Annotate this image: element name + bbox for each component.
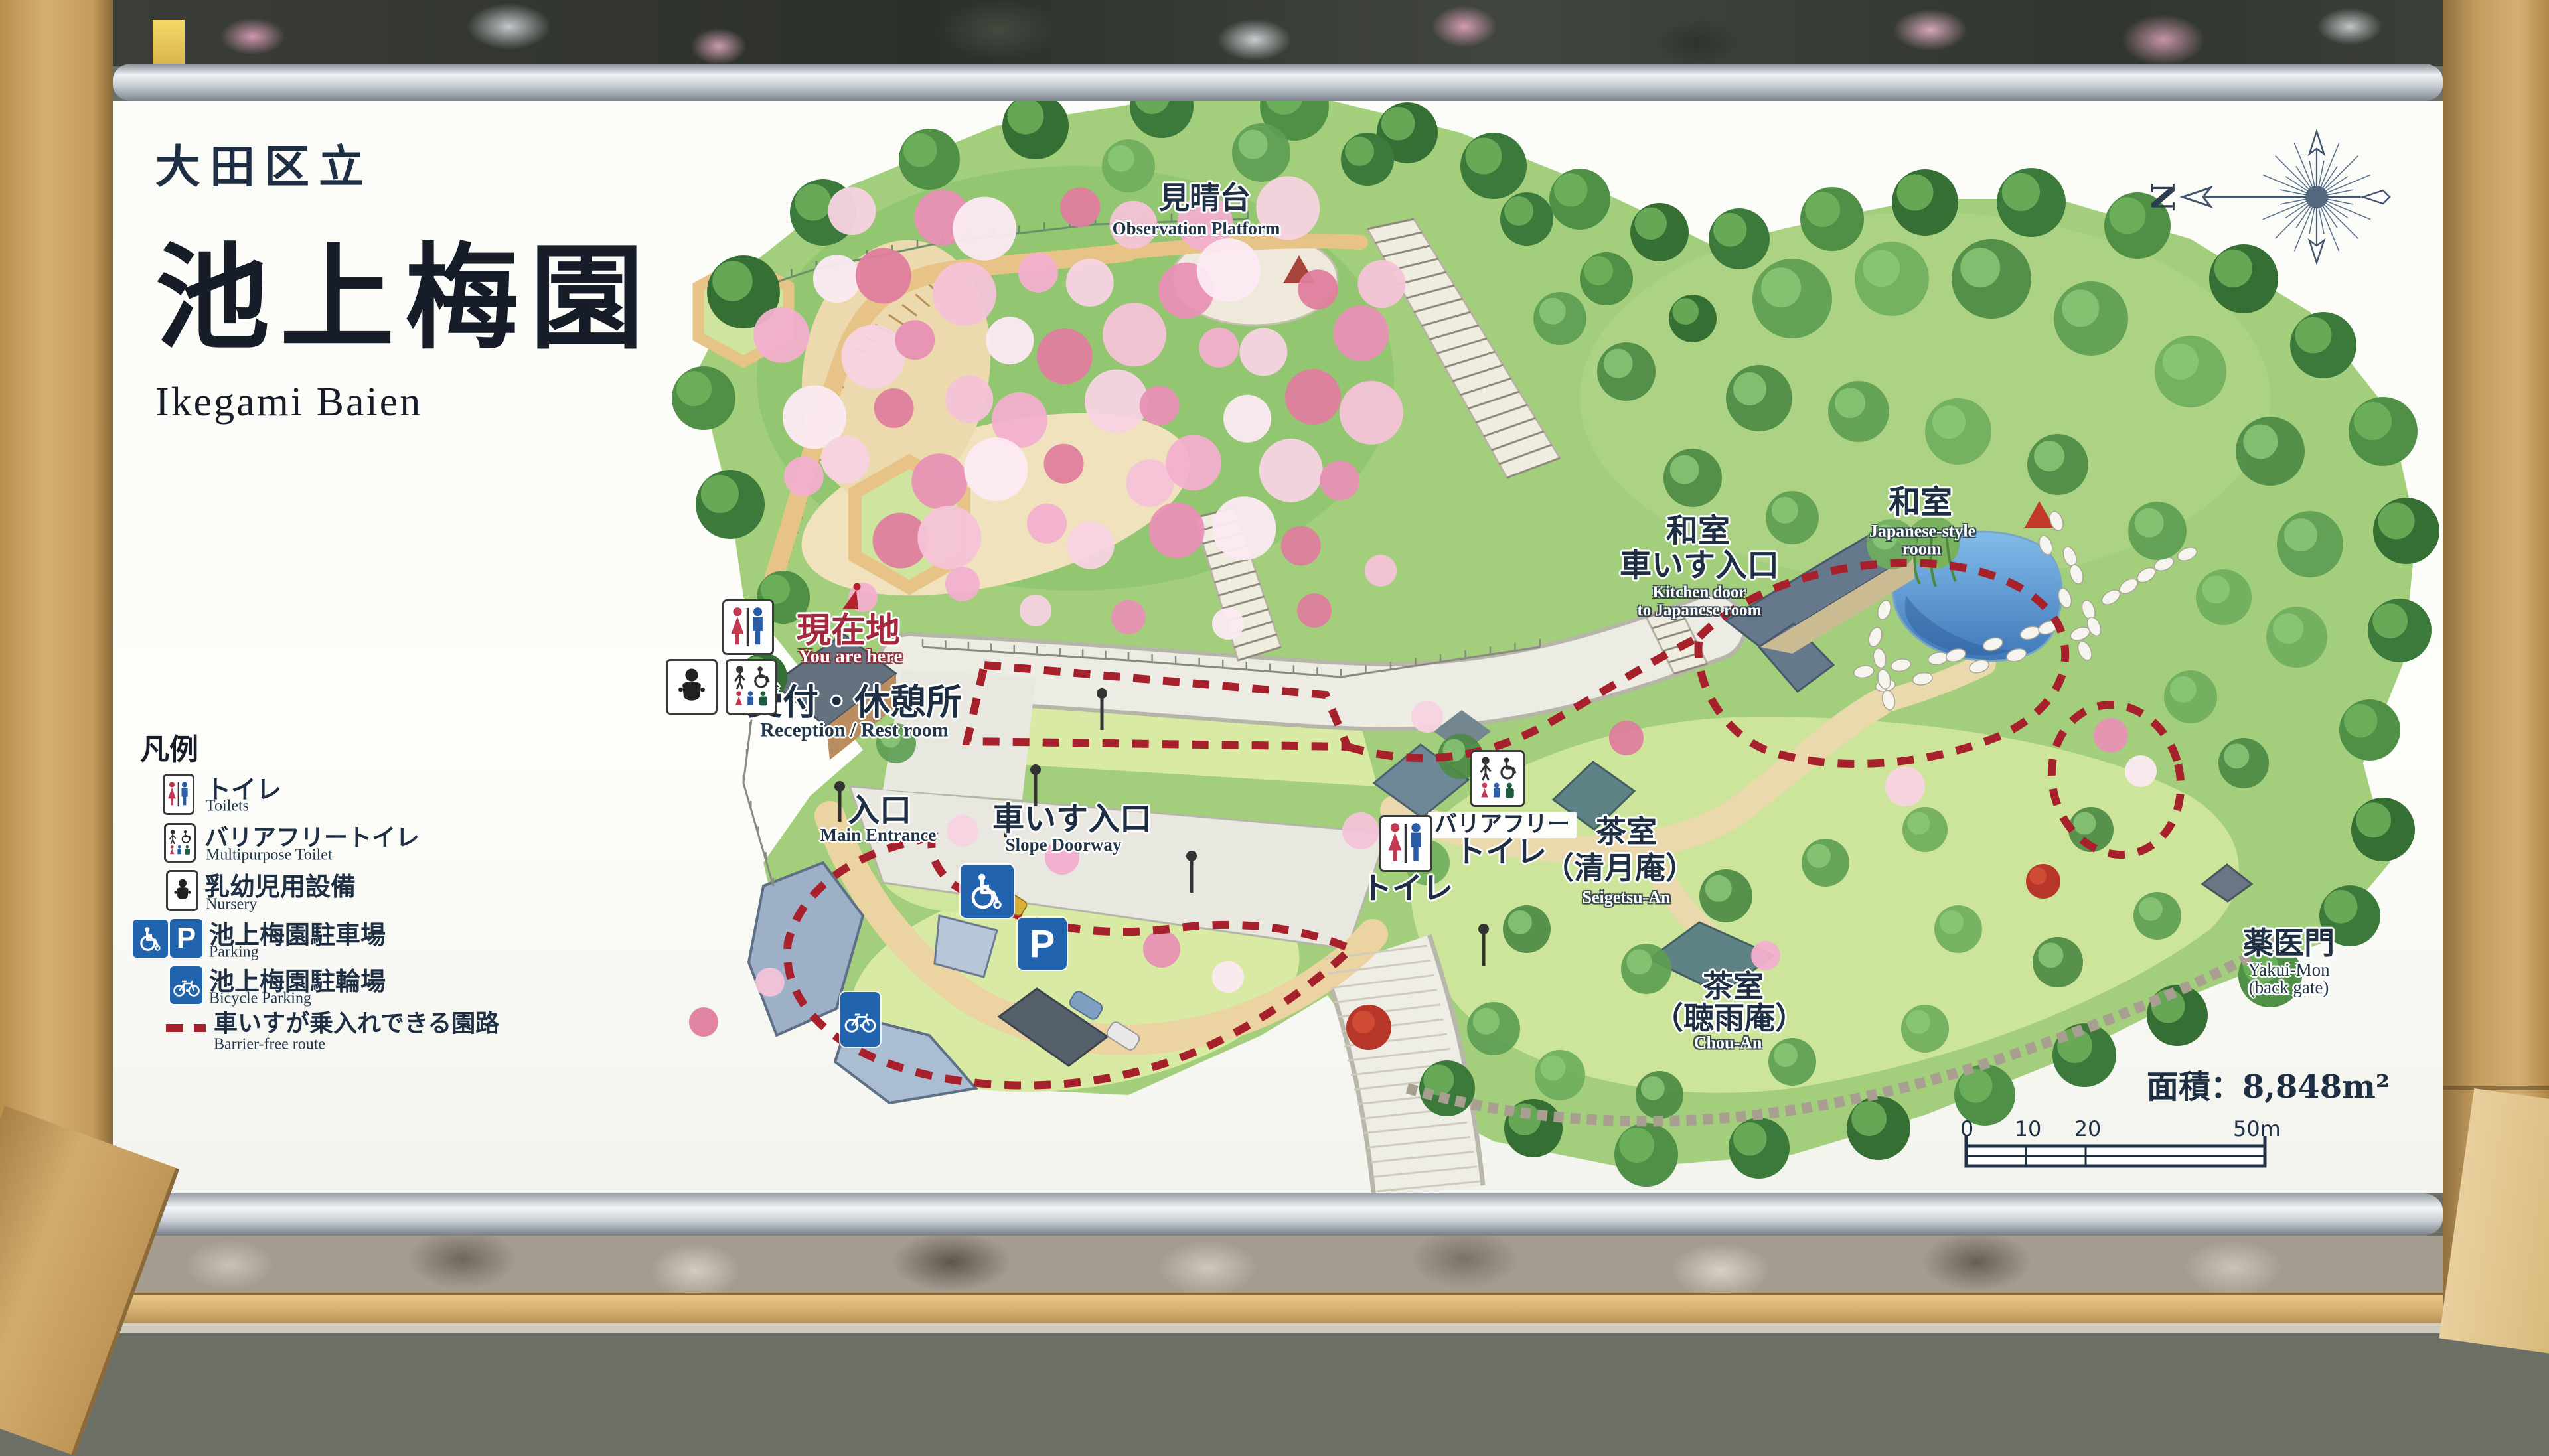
legend-parking-en: Parking <box>209 944 259 960</box>
label-you-are-here-en: You are here <box>799 646 903 666</box>
legend-heading: 凡例 <box>140 735 198 765</box>
label-washitsu-kitchen-jp1: 和室 <box>1666 514 1730 547</box>
label-toilet-jp: トイレ <box>1361 872 1453 904</box>
sunlit-wood-sliver <box>153 20 185 66</box>
toilet-icon-map-2 <box>1379 815 1432 872</box>
legend-route-en: Barrier-free route <box>214 1036 325 1053</box>
label-observation-jp: 見晴台 <box>1159 182 1251 214</box>
label-washitsu-kitchen-en1: Kitchen door <box>1653 584 1746 601</box>
label-slope-doorway-en: Slope Doorway <box>1006 836 1122 854</box>
scale-tick-10: 10 <box>2015 1118 2042 1141</box>
label-seigetsu-jp2: （清月庵） <box>1543 852 1696 884</box>
wheelchair-icon-map <box>961 865 1014 918</box>
legend-wheelchair-icon <box>133 920 168 958</box>
label-washitsu-en1: Japanese-style <box>1869 522 1975 540</box>
legend-bicycle-en: Bicycle Parking <box>209 990 311 1007</box>
label-chouan-jp2: （聴雨庵） <box>1653 1002 1806 1034</box>
legend-dashed-route-swatch <box>166 1024 206 1032</box>
legend-parking-letter: P <box>177 922 196 955</box>
scale-bar <box>1966 1136 2265 1166</box>
photo-of-park-map-sign: { "sign": { "org": "大田区立", "title": "池上梅… <box>0 0 2549 1333</box>
stone-wall-photo <box>113 1236 2443 1294</box>
label-washitsu-jp: 和室 <box>1889 486 1952 519</box>
scale-tick-0: 0 <box>1960 1118 1973 1141</box>
you-are-here-marker-icon <box>838 581 867 613</box>
label-yakuimon-en2: (back gate) <box>2249 978 2329 997</box>
label-you-are-here-jp: 現在地 <box>797 613 900 650</box>
label-chouan-en: Chou-An <box>1694 1033 1762 1051</box>
label-chouan-jp1: 茶室 <box>1703 970 1764 1002</box>
legend-toilet-icon <box>163 774 194 815</box>
compass-rose <box>2183 131 2390 263</box>
background-plum-branches-photo <box>113 0 2443 66</box>
legend-multipurpose-icon <box>164 823 196 863</box>
multipurpose-toilet-icon-map-2 <box>1470 750 1525 807</box>
label-slope-doorway-jp: 車いす入口 <box>992 802 1152 836</box>
org-name: 大田区立 <box>155 130 655 196</box>
scale-tick-50m: 50m <box>2233 1118 2281 1141</box>
frame-seam <box>2443 1086 2549 1090</box>
legend-nursery-icon <box>166 870 198 911</box>
toilet-icon-map-1 <box>722 599 774 655</box>
legend-parking-icon: P <box>170 919 202 958</box>
label-reception-jp: 受付・休憩所 <box>747 684 962 721</box>
label-seigetsu-en: Seigetsu-An <box>1583 888 1671 906</box>
label-yakuimon-jp: 薬医門 <box>2243 927 2335 959</box>
area-figure: 面積：8,848m² <box>2147 1060 2390 1107</box>
bicycle-parking-icon-map <box>840 992 880 1047</box>
park-title-en: Ikegami Baien <box>155 379 655 426</box>
sign-top-aluminum-rail <box>113 64 2443 101</box>
legend-route-jp: 車いすが乗入れできる園路 <box>214 1011 499 1037</box>
label-barrier-free-jp2: トイレ <box>1455 836 1547 867</box>
sign-bottom-aluminum-rail <box>113 1193 2443 1236</box>
scale-tick-20: 20 <box>2074 1118 2102 1141</box>
wooden-bottom-rail <box>113 1293 2443 1326</box>
label-main-entrance-jp: 入口 <box>848 794 911 827</box>
ground <box>113 1323 2443 1333</box>
parking-letter: P <box>1030 922 1055 966</box>
label-observation-en: Observation Platform <box>1113 219 1280 238</box>
park-title-jp: 池上梅園 <box>155 205 655 371</box>
legend-multipurpose-en: Multipurpose Toilet <box>206 847 333 863</box>
legend-nursery-en: Nursery <box>206 896 257 912</box>
label-washitsu-kitchen-en2: to Japanese room <box>1637 602 1761 619</box>
title-block: 大田区立 池上梅園 Ikegami Baien <box>155 130 655 426</box>
legend-toilet-en: Toilets <box>206 798 249 814</box>
label-yakuimon-en1: Yakui-Mon <box>2248 960 2329 979</box>
label-main-entrance-en: Main Entrance <box>820 826 937 844</box>
parking-icon-map: P <box>1018 918 1067 970</box>
label-reception-en: Reception / Rest room <box>760 719 949 741</box>
label-washitsu-en2: room <box>1902 540 1942 557</box>
label-washitsu-kitchen-jp2: 車いす入口 <box>1620 549 1779 582</box>
compass-north-label: N <box>2145 182 2179 212</box>
multipurpose-toilet-icon-map-1 <box>726 659 777 715</box>
nursery-icon-map <box>666 659 718 715</box>
legend-bicycle-icon <box>170 966 202 1004</box>
label-seigetsu-jp1: 茶室 <box>1596 816 1657 847</box>
